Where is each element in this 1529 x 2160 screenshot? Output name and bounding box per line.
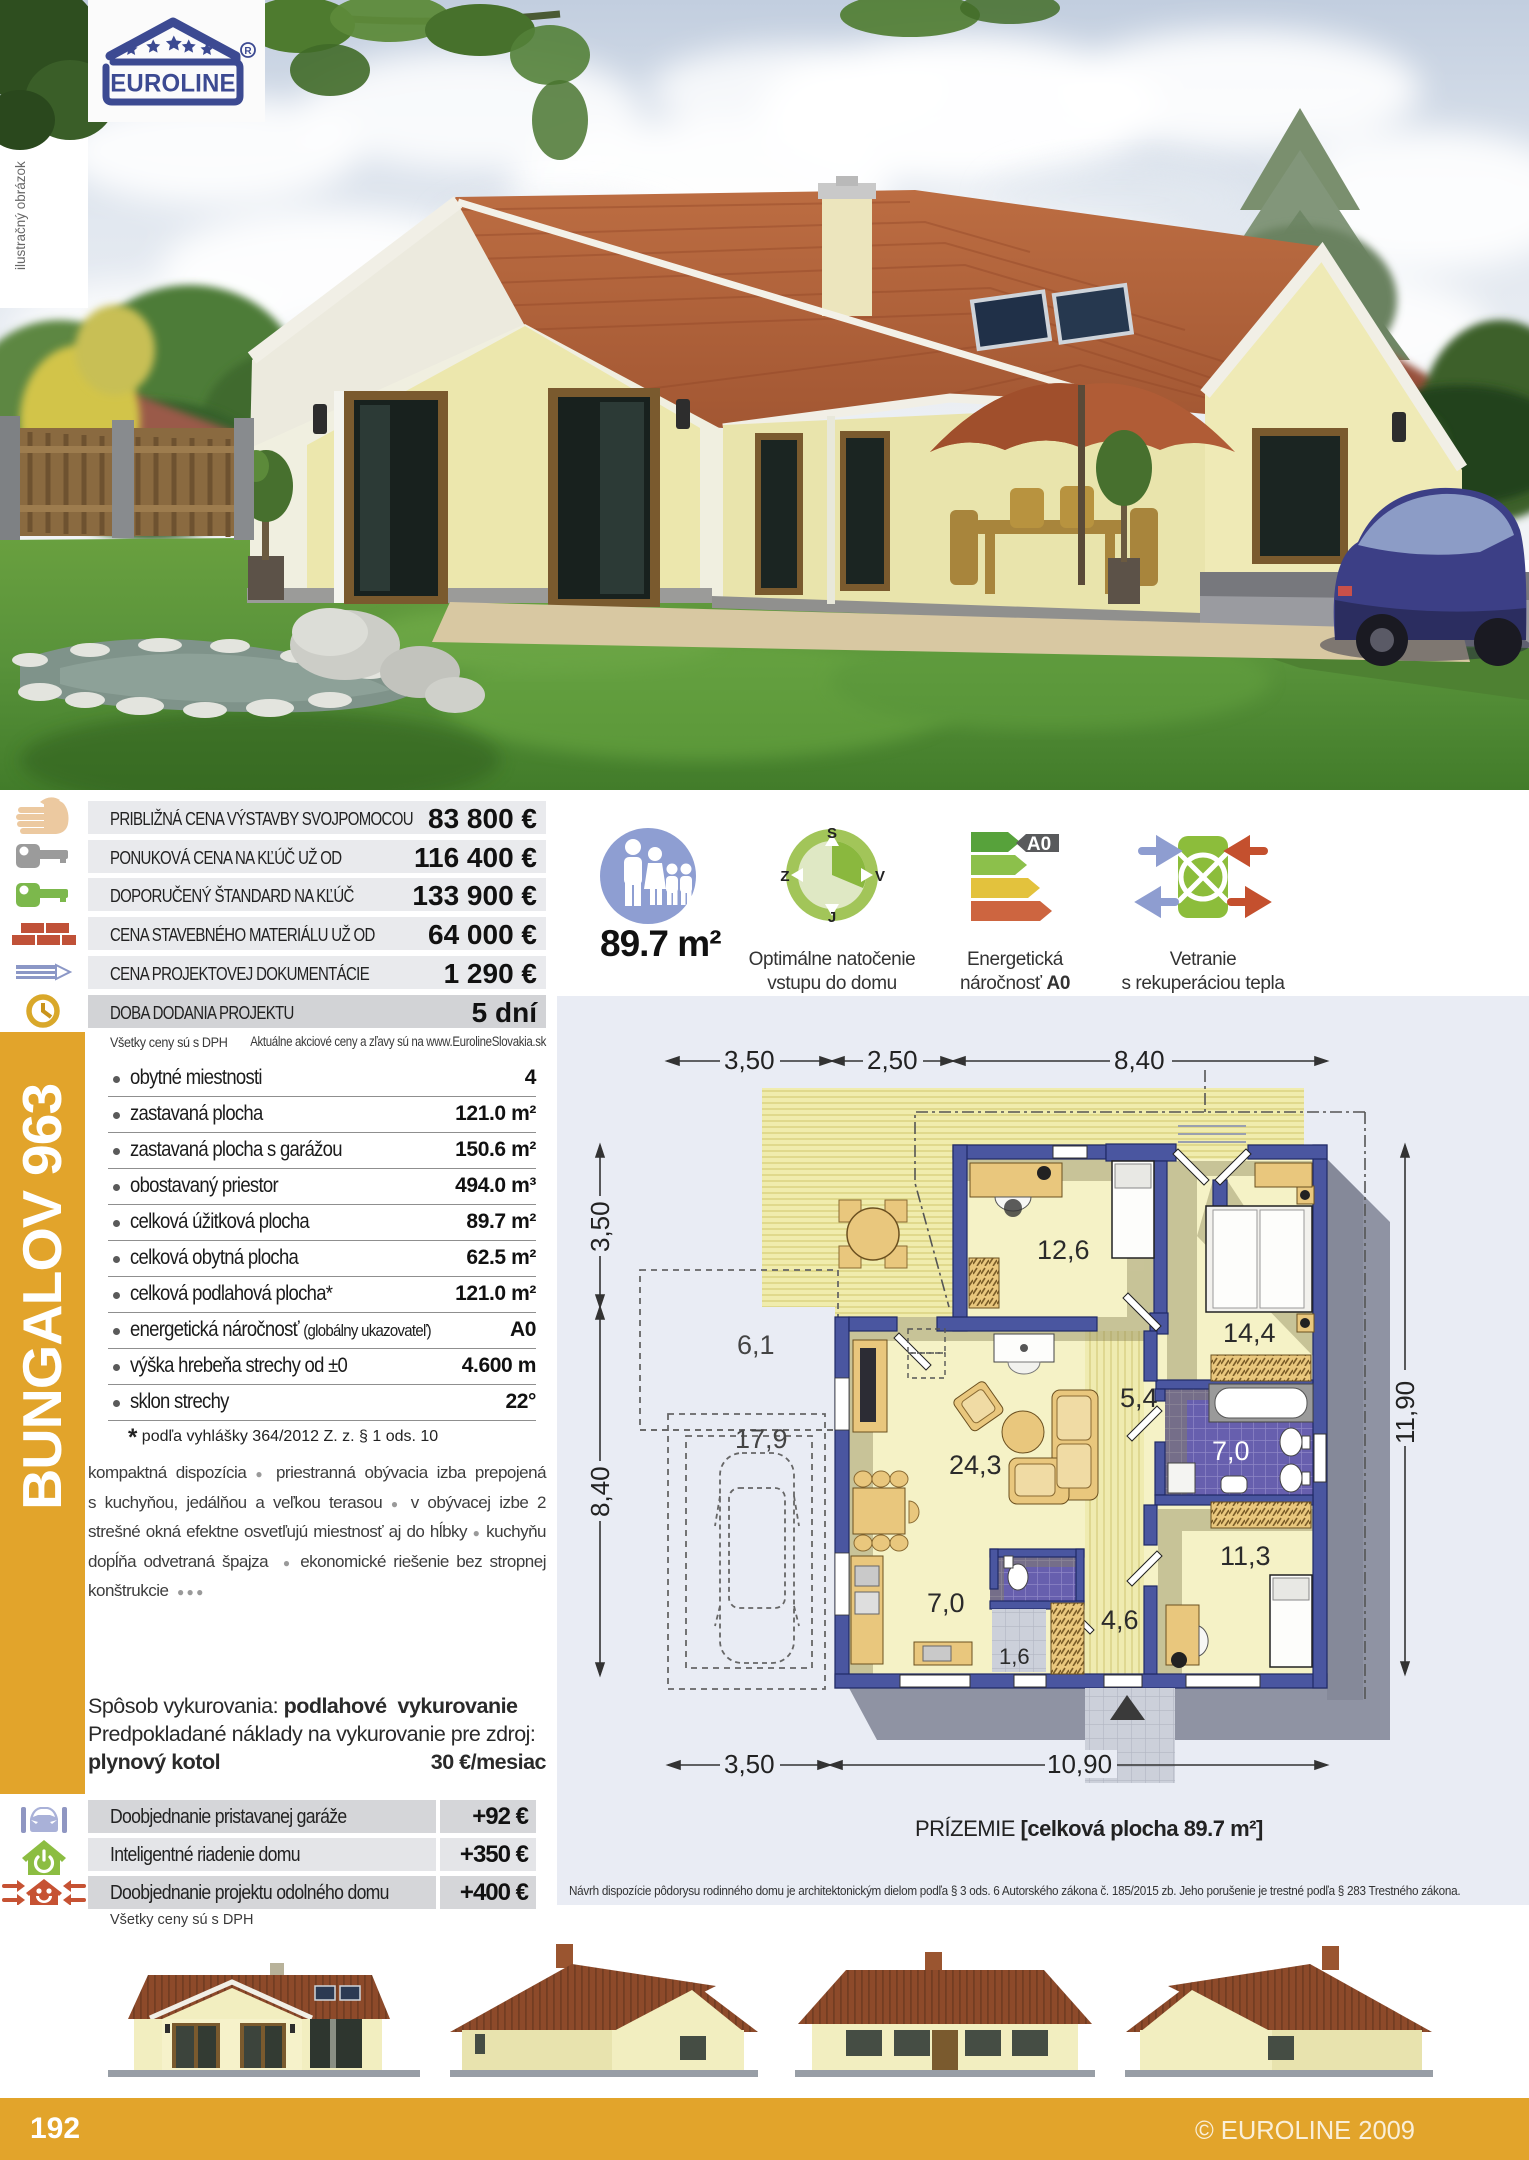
svg-text:J: J — [828, 909, 836, 926]
svg-text:A0: A0 — [1027, 834, 1051, 855]
svg-text:10,90: 10,90 — [1047, 1749, 1112, 1779]
svg-text:11,3: 11,3 — [1220, 1541, 1271, 1571]
svg-text:3,50: 3,50 — [585, 1201, 615, 1252]
svg-text:S: S — [827, 825, 837, 842]
svg-text:EUROLINE: EUROLINE — [110, 70, 236, 98]
svg-text:24,3: 24,3 — [949, 1450, 1002, 1480]
svg-text:8,40: 8,40 — [1114, 1045, 1165, 1075]
svg-text:Z: Z — [780, 868, 789, 885]
svg-text:6,1: 6,1 — [737, 1330, 775, 1360]
svg-text:4,6: 4,6 — [1101, 1605, 1139, 1635]
svg-text:11,90: 11,90 — [1390, 1381, 1420, 1444]
svg-text:7,0: 7,0 — [927, 1588, 965, 1618]
svg-text:17,9: 17,9 — [735, 1424, 788, 1454]
svg-text:7,0: 7,0 — [1212, 1436, 1250, 1466]
svg-text:89.7 m²: 89.7 m² — [600, 923, 721, 964]
svg-text:3,50: 3,50 — [724, 1749, 775, 1779]
svg-text:3,50: 3,50 — [724, 1045, 775, 1075]
svg-text:1,6: 1,6 — [999, 1644, 1030, 1669]
svg-text:8,40: 8,40 — [585, 1466, 615, 1517]
svg-text:5,4: 5,4 — [1120, 1383, 1158, 1413]
svg-text:14,4: 14,4 — [1223, 1318, 1276, 1348]
svg-text:2,50: 2,50 — [867, 1045, 918, 1075]
svg-text:V: V — [875, 868, 885, 885]
svg-text:12,6: 12,6 — [1037, 1235, 1090, 1265]
svg-text:R: R — [244, 46, 252, 57]
